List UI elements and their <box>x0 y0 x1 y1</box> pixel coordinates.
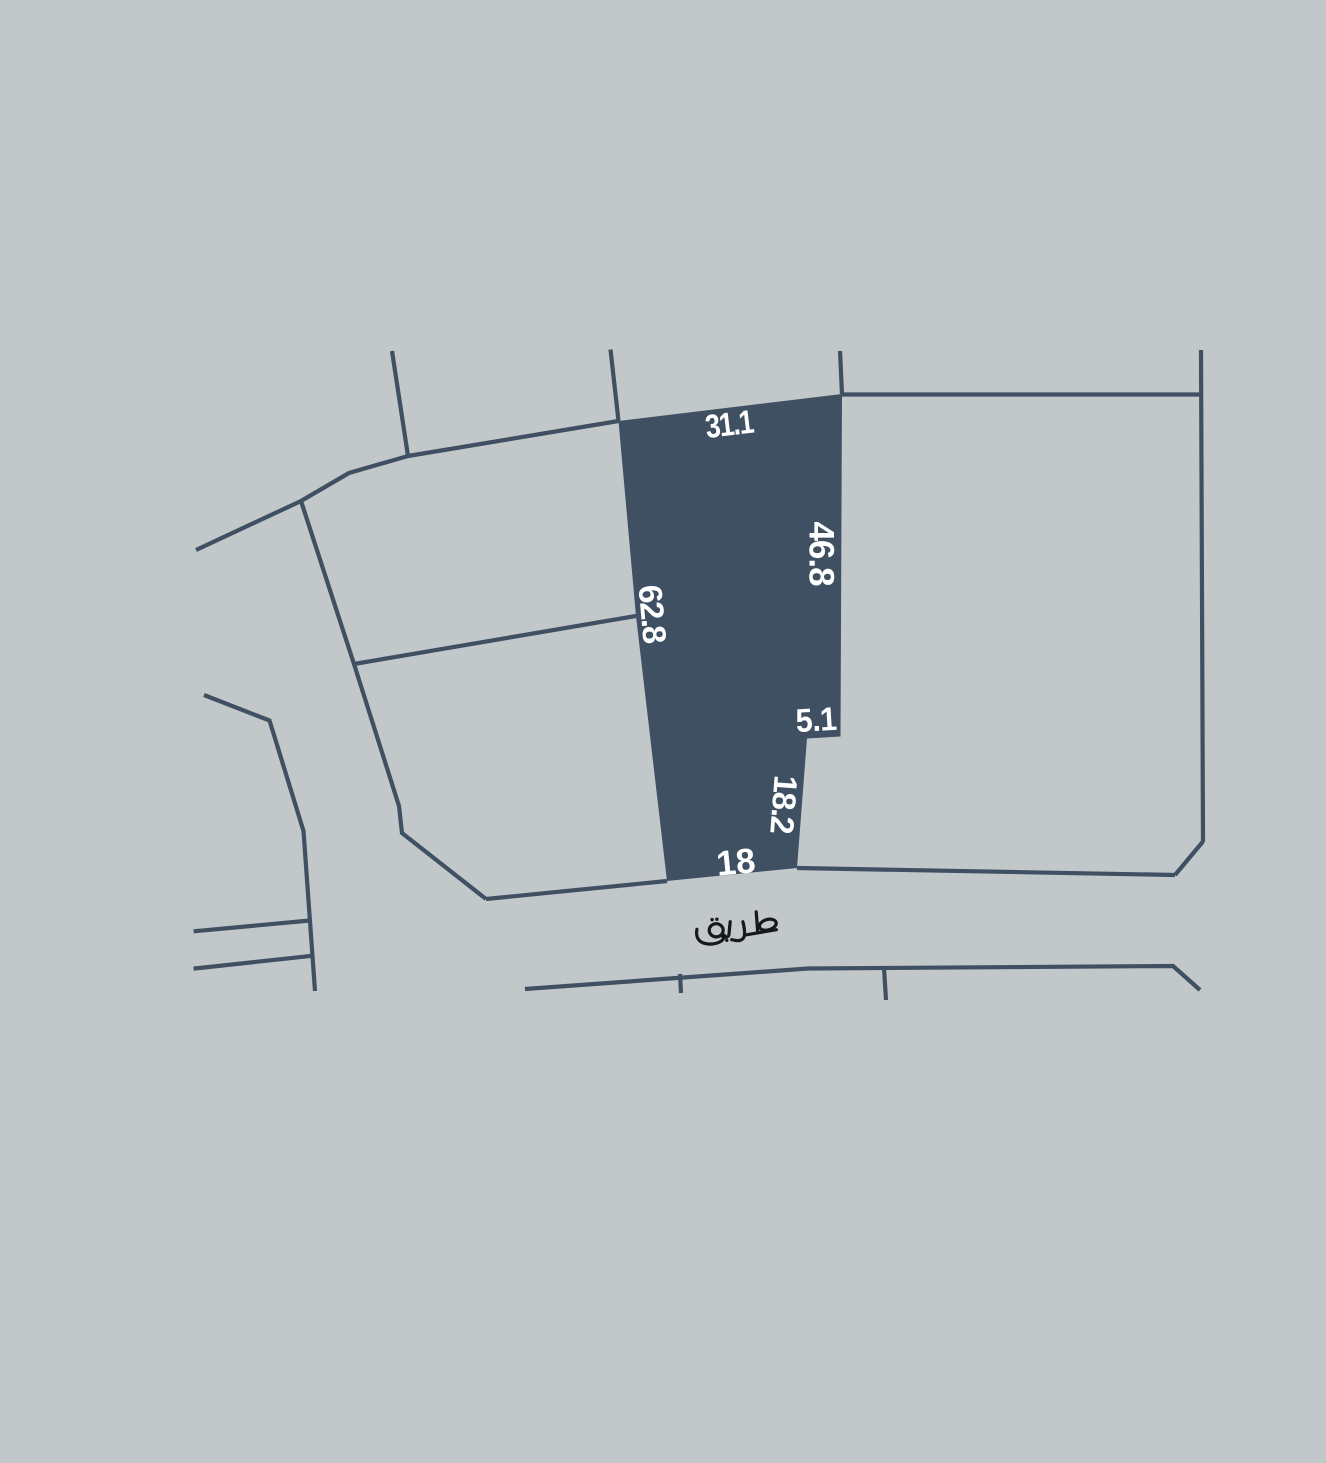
svg-text:46.8: 46.8 <box>802 521 841 586</box>
svg-text:18.2: 18.2 <box>763 774 804 835</box>
svg-text:18: 18 <box>714 841 757 884</box>
svg-text:31.1: 31.1 <box>703 404 755 446</box>
svg-text:5.1: 5.1 <box>795 700 838 740</box>
svg-text:62.8: 62.8 <box>632 583 674 645</box>
